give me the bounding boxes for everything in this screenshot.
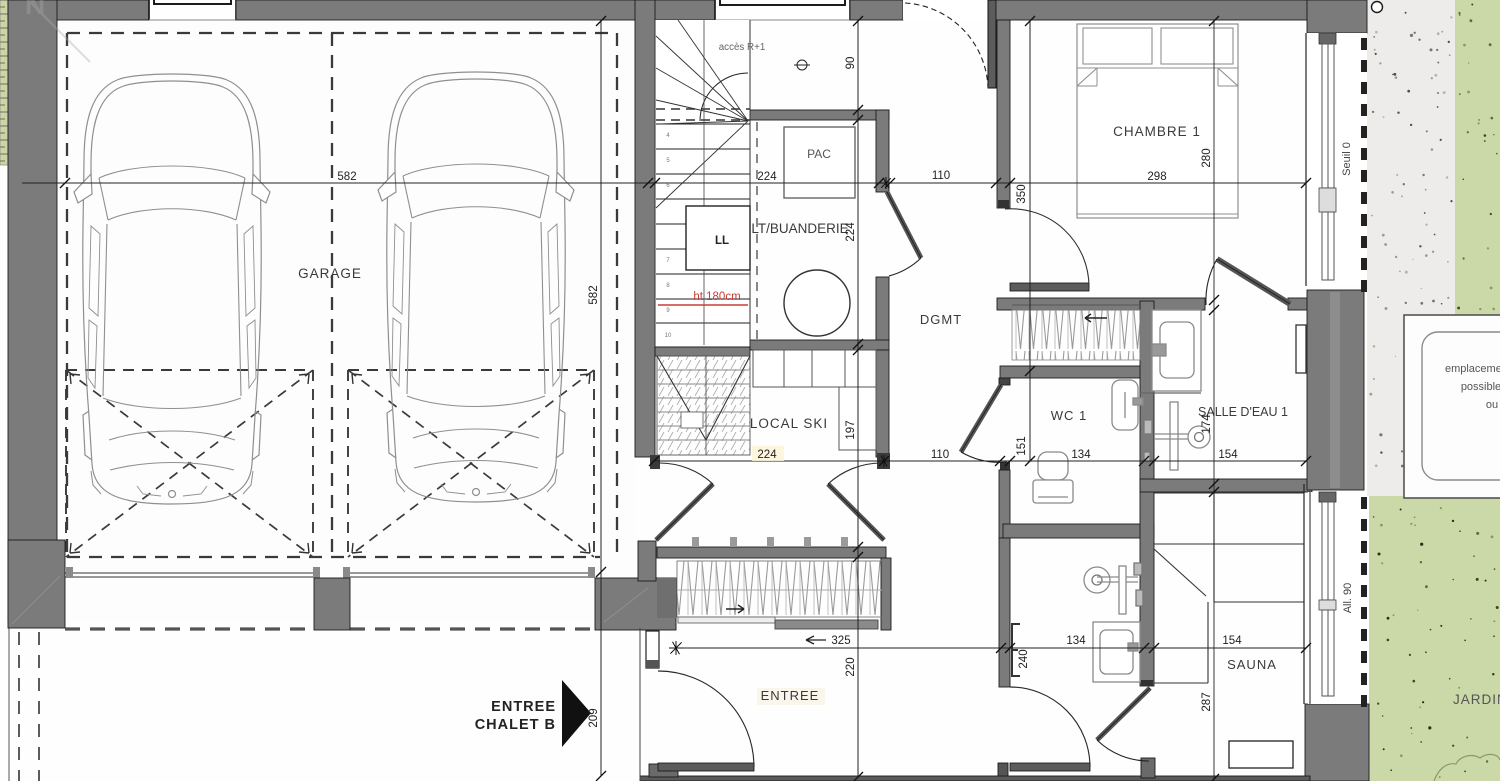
- svg-text:197: 197: [845, 420, 857, 439]
- svg-text:174: 174: [1201, 414, 1213, 434]
- svg-text:WC 1: WC 1: [1051, 408, 1088, 423]
- svg-text:325: 325: [831, 635, 850, 647]
- svg-text:CHALET B: CHALET B: [475, 717, 556, 733]
- svg-text:ENTREE: ENTREE: [491, 699, 556, 715]
- svg-text:154: 154: [1218, 449, 1238, 461]
- svg-text:PAC: PAC: [807, 147, 831, 161]
- svg-text:134: 134: [1071, 449, 1091, 461]
- svg-text:350: 350: [1016, 184, 1028, 203]
- svg-text:582: 582: [588, 285, 600, 304]
- svg-text:ENTREE: ENTREE: [761, 688, 820, 703]
- svg-text:209: 209: [588, 708, 600, 727]
- svg-text:LT/BUANDERIE: LT/BUANDERIE: [751, 221, 848, 236]
- svg-text:224: 224: [757, 449, 777, 461]
- svg-text:110: 110: [931, 449, 949, 461]
- svg-text:LL: LL: [715, 235, 729, 247]
- svg-text:151: 151: [1016, 436, 1028, 455]
- svg-text:90: 90: [845, 57, 857, 70]
- svg-text:N: N: [25, 0, 45, 20]
- svg-text:220: 220: [845, 657, 857, 676]
- svg-text:154: 154: [1222, 635, 1242, 647]
- svg-text:accès R+1: accès R+1: [719, 42, 766, 53]
- svg-text:ht 180cm: ht 180cm: [693, 291, 740, 303]
- svg-text:240: 240: [1018, 649, 1030, 668]
- svg-text:Seuil 0: Seuil 0: [1341, 142, 1353, 176]
- svg-text:287: 287: [1201, 692, 1213, 711]
- svg-text:All. 90: All. 90: [1342, 583, 1354, 614]
- svg-text:134: 134: [1066, 635, 1086, 647]
- svg-text:GARAGE: GARAGE: [298, 266, 362, 281]
- svg-text:10: 10: [665, 333, 672, 339]
- svg-text:LOCAL SKI: LOCAL SKI: [750, 416, 828, 431]
- svg-text:582: 582: [337, 171, 356, 183]
- svg-text:110: 110: [932, 170, 950, 182]
- svg-text:emplacement: emplacement: [1445, 363, 1500, 375]
- svg-text:ou: ou: [1486, 399, 1498, 411]
- svg-text:SAUNA: SAUNA: [1227, 657, 1277, 672]
- svg-text:224: 224: [845, 222, 857, 242]
- svg-text:224: 224: [757, 171, 777, 183]
- svg-text:JARDIN: JARDIN: [1453, 692, 1500, 707]
- svg-text:possible: possible: [1461, 381, 1500, 393]
- svg-text:CHAMBRE 1: CHAMBRE 1: [1113, 124, 1201, 139]
- svg-text:DGMT: DGMT: [920, 312, 962, 327]
- svg-text:280: 280: [1201, 148, 1213, 167]
- svg-text:298: 298: [1147, 171, 1166, 183]
